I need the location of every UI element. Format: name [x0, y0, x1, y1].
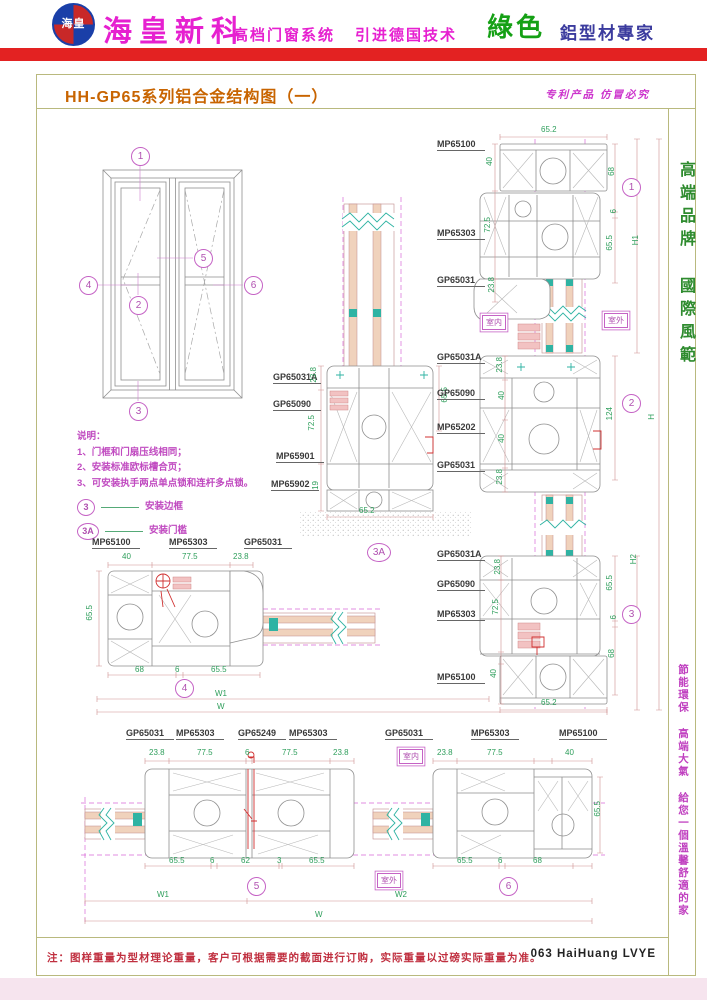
- tagline-door-window: 高档门窗系统: [233, 24, 335, 45]
- profile-label: MP65202: [437, 422, 485, 434]
- dim-label: 72.5: [484, 217, 492, 233]
- profile-label: GP65090: [437, 579, 485, 591]
- dim-label: 77.5: [487, 749, 503, 757]
- profile-label: GP65249: [238, 728, 286, 740]
- profile-label: MP65100: [92, 537, 140, 549]
- section-callout-5: 5: [247, 877, 266, 896]
- dim-label: 65.2: [359, 507, 375, 515]
- catalog-page: { "colors": { "brand_magenta": "#e620d0"…: [0, 0, 707, 1000]
- profile-label: GP65090: [273, 399, 321, 411]
- dim-label: 23.8: [437, 749, 453, 757]
- vertical-sections-drawing: [474, 134, 662, 713]
- brand-name: 海皇新科: [103, 8, 247, 50]
- dim-label: H: [648, 414, 656, 420]
- dim-label: 40: [565, 749, 574, 757]
- dim-label: 65.5: [457, 857, 473, 865]
- dim-label: 6: [245, 749, 249, 757]
- dim-label: 40: [490, 669, 498, 678]
- dim-label: 72.5: [308, 415, 316, 431]
- profile-label: MP65303: [471, 728, 519, 740]
- profile-label: MP65100: [437, 139, 485, 151]
- detail-5-drawing: [85, 752, 354, 869]
- elevation-callout-6: 6: [244, 276, 263, 295]
- brand-logo-icon: 海皇: [52, 3, 95, 46]
- elevation-drawing: [97, 165, 243, 401]
- profile-label: GP65031: [437, 275, 485, 287]
- elevation-callout-4: 4: [79, 276, 98, 295]
- profile-label: MP65303: [169, 537, 217, 549]
- dim-label: 23.8: [233, 553, 249, 561]
- dim-label: 65.5: [211, 666, 227, 674]
- patent-note: 专利产品 仿冒必究: [545, 87, 650, 102]
- section-callout-1: 1: [622, 178, 641, 197]
- drawing-area: 1 4 5 2 6 3 说明： 1、门框和门扇压线相同； 2、安装标准欧标槽合页…: [37, 109, 668, 939]
- footer-note-row: 注：图样重量为型材理论重量，客户可根据需要的截面进行订购，实际重量以过磅实际重量…: [37, 937, 668, 975]
- dim-label: 23.8: [496, 357, 504, 373]
- page-header: 海皇 海皇新科 高档门窗系统 引进德国技术 綠色 鋁型材專家: [0, 0, 707, 48]
- profile-label: GP65031: [126, 728, 174, 740]
- logo-text: 海皇: [54, 15, 93, 31]
- profile-label: GP65031: [244, 537, 292, 549]
- page-title: HH-GP65系列铝合金结构图（一）: [65, 83, 328, 107]
- dim-label: 6: [210, 857, 214, 865]
- legend-leader-line: [105, 531, 143, 532]
- dim-label: 65.5: [169, 857, 185, 865]
- dim-label: 77.5: [197, 749, 213, 757]
- footer-note: 注：图样重量为型材理论重量，客户可根据需要的截面进行订购，实际重量以过磅实际重量…: [47, 950, 542, 965]
- dim-label: 6: [498, 857, 502, 865]
- dim-label: 23.8: [149, 749, 165, 757]
- profile-label: MP65303: [437, 609, 485, 621]
- dim-label: 3: [277, 857, 281, 865]
- profile-label: MP65303: [437, 228, 485, 240]
- dim-label: 68: [608, 649, 616, 658]
- dim-label: 68: [135, 666, 144, 674]
- dim-label: 6: [610, 615, 618, 619]
- section-callout-6: 6: [499, 877, 518, 896]
- profile-label: MP65100: [559, 728, 607, 740]
- section-callout-3: 3: [622, 605, 641, 624]
- legend-callout-3: 3: [77, 499, 95, 516]
- section-callout-2: 2: [622, 394, 641, 413]
- dim-label: 68: [533, 857, 542, 865]
- dim-label: 65.5: [86, 605, 94, 621]
- green-label: 綠色: [487, 7, 545, 44]
- page-number: 063 HaiHuang LVYE: [531, 948, 656, 960]
- dim-label: 72.5: [492, 599, 500, 615]
- section-callout-4: 4: [175, 679, 194, 698]
- dim-label: 77.5: [182, 553, 198, 561]
- elevation-callout-3: 3: [129, 402, 148, 421]
- sidebar-slogan-bottom: 節能環保 高端大氣 給您一個溫馨舒適的家: [676, 664, 691, 917]
- legend-row-frame: 3 安装边框: [77, 499, 327, 516]
- dim-label: 23.8: [333, 749, 349, 757]
- dim-label: 65.2: [541, 126, 557, 134]
- dim-label: 62: [241, 857, 250, 865]
- red-divider-bar: [0, 48, 707, 61]
- dim-label: H1: [632, 235, 640, 245]
- section-callout-3a: 3A: [367, 543, 391, 562]
- profile-label: MP65901: [276, 451, 324, 463]
- dim-label: H2: [630, 554, 638, 564]
- dim-label: 6: [175, 666, 179, 674]
- dim-label: 40: [498, 434, 506, 443]
- dim-label: 65.5: [606, 575, 614, 591]
- content-frame: HH-GP65系列铝合金结构图（一） 专利产品 仿冒必究 高端品牌 國際風範 節…: [36, 74, 696, 976]
- right-sidebar: 高端品牌 國際風範 節能環保 高端大氣 給您一個溫馨舒適的家: [668, 109, 695, 975]
- dim-label: W2: [395, 891, 407, 899]
- profile-label: GP65031A: [437, 352, 485, 364]
- profile-label: MP65100: [437, 672, 485, 684]
- detail-6-drawing: [373, 758, 603, 869]
- dim-label: 23.8: [488, 277, 496, 293]
- elevation-callout-1: 1: [131, 147, 150, 166]
- dim-label: 6: [610, 209, 618, 213]
- expert-label: 鋁型材專家: [560, 19, 655, 44]
- dim-label: W1: [215, 690, 227, 698]
- dim-label: 77.5: [282, 749, 298, 757]
- profile-label: GP65031: [385, 728, 433, 740]
- dim-label: 68: [608, 167, 616, 176]
- room-label-outside: 室外: [604, 313, 628, 328]
- room-label-inside: 室内: [482, 315, 506, 330]
- elevation-callout-5: 5: [194, 249, 213, 268]
- room-label-inside: 室内: [399, 749, 423, 764]
- elevation-callout-2: 2: [129, 296, 148, 315]
- dim-label: 65.5: [606, 235, 614, 251]
- profile-label: GP65090: [437, 388, 485, 400]
- dim-label: 40: [122, 553, 131, 561]
- notes-heading: 说明：: [77, 429, 327, 445]
- dim-label: 40: [486, 157, 494, 166]
- tagline-german-tech: 引进德国技术: [355, 24, 457, 45]
- legend-label-frame: 安装边框: [145, 499, 183, 515]
- profile-label: MP65303: [176, 728, 224, 740]
- dim-label: W1: [157, 891, 169, 899]
- dim-label: 23.8: [494, 559, 502, 575]
- dim-label: 124: [606, 407, 614, 420]
- title-bar: HH-GP65系列铝合金结构图（一） 专利产品 仿冒必究: [37, 75, 695, 109]
- dim-label: 40: [498, 391, 506, 400]
- profile-label: GP65031A: [437, 549, 485, 561]
- bottom-strip: [0, 978, 707, 1000]
- dim-label: 23.8: [496, 469, 504, 485]
- dim-label: 19: [312, 481, 320, 490]
- dim-label: W: [217, 703, 225, 711]
- dim-label: 65.2: [541, 699, 557, 707]
- legend-leader-line: [101, 507, 139, 508]
- dim-label: 65.5: [309, 857, 325, 865]
- dim-label: 23.8: [310, 367, 318, 383]
- dim-label: W: [315, 911, 323, 919]
- dim-label: 65.5: [594, 801, 602, 817]
- sidebar-slogan-top: 高端品牌 國際風範: [673, 161, 697, 369]
- profile-label: GP65031: [437, 460, 485, 472]
- room-label-outside: 室外: [377, 873, 401, 888]
- profile-label: MP65303: [289, 728, 337, 740]
